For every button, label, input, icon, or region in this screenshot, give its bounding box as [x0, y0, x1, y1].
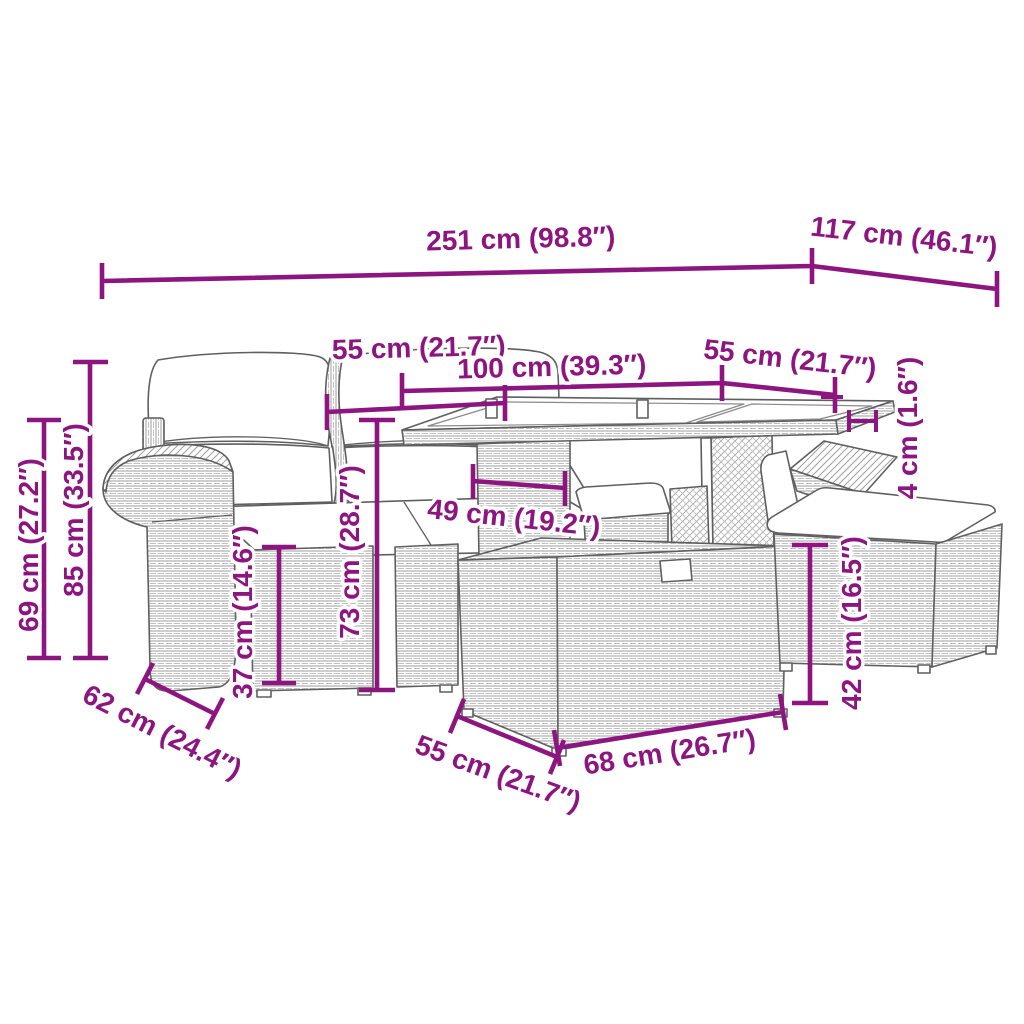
right-stool — [767, 488, 1002, 673]
dim-label-table-height: 73 cm (28.7″) — [334, 465, 365, 639]
armrest-body — [103, 445, 236, 692]
dim-label-armrest-height: 69 cm (27.2″) — [13, 458, 44, 632]
dim-label-table-length: 100 cm (39.3″) — [457, 349, 647, 385]
sofa-foot — [257, 690, 271, 697]
stool-foot — [780, 663, 792, 671]
dim-label-stool-height: 42 cm (16.5″) — [836, 536, 867, 710]
dim-label-seat-height: 37 cm (14.6″) — [227, 525, 258, 699]
dim-label-total-width: 251 cm (98.8″) — [426, 221, 616, 257]
dimension-diagram: 251 cm (98.8″) 117 cm (46.1″) 55 cm (21.… — [0, 0, 1024, 1024]
box-foot — [462, 709, 473, 717]
table-clamp — [637, 400, 648, 418]
storage-box — [458, 538, 787, 756]
back-cushion-left — [148, 352, 330, 446]
stool-foot — [918, 665, 930, 673]
sofa-foot — [440, 685, 452, 692]
dim-label-tabletop-thickness: 4 cm (1.6″) — [892, 357, 923, 500]
under-table-slab — [670, 486, 709, 550]
dim-label-table-width: 55 cm (21.7″) — [702, 333, 878, 383]
diagram-canvas: 251 cm (98.8″) 117 cm (46.1″) 55 cm (21.… — [0, 0, 1024, 1024]
dim-label-seat-depth: 62 cm (24.4″) — [78, 678, 247, 784]
dim-label-total-height: 85 cm (33.5″) — [58, 423, 89, 597]
dim-line-total-depth — [812, 266, 997, 307]
sofa-base-front-right — [395, 544, 458, 687]
box-handle — [660, 559, 692, 582]
stool-cushion — [767, 488, 995, 543]
sofa-armrest — [103, 445, 236, 692]
dim-label-total-depth: 117 cm (46.1″) — [809, 211, 999, 263]
stool-foot — [986, 646, 996, 654]
